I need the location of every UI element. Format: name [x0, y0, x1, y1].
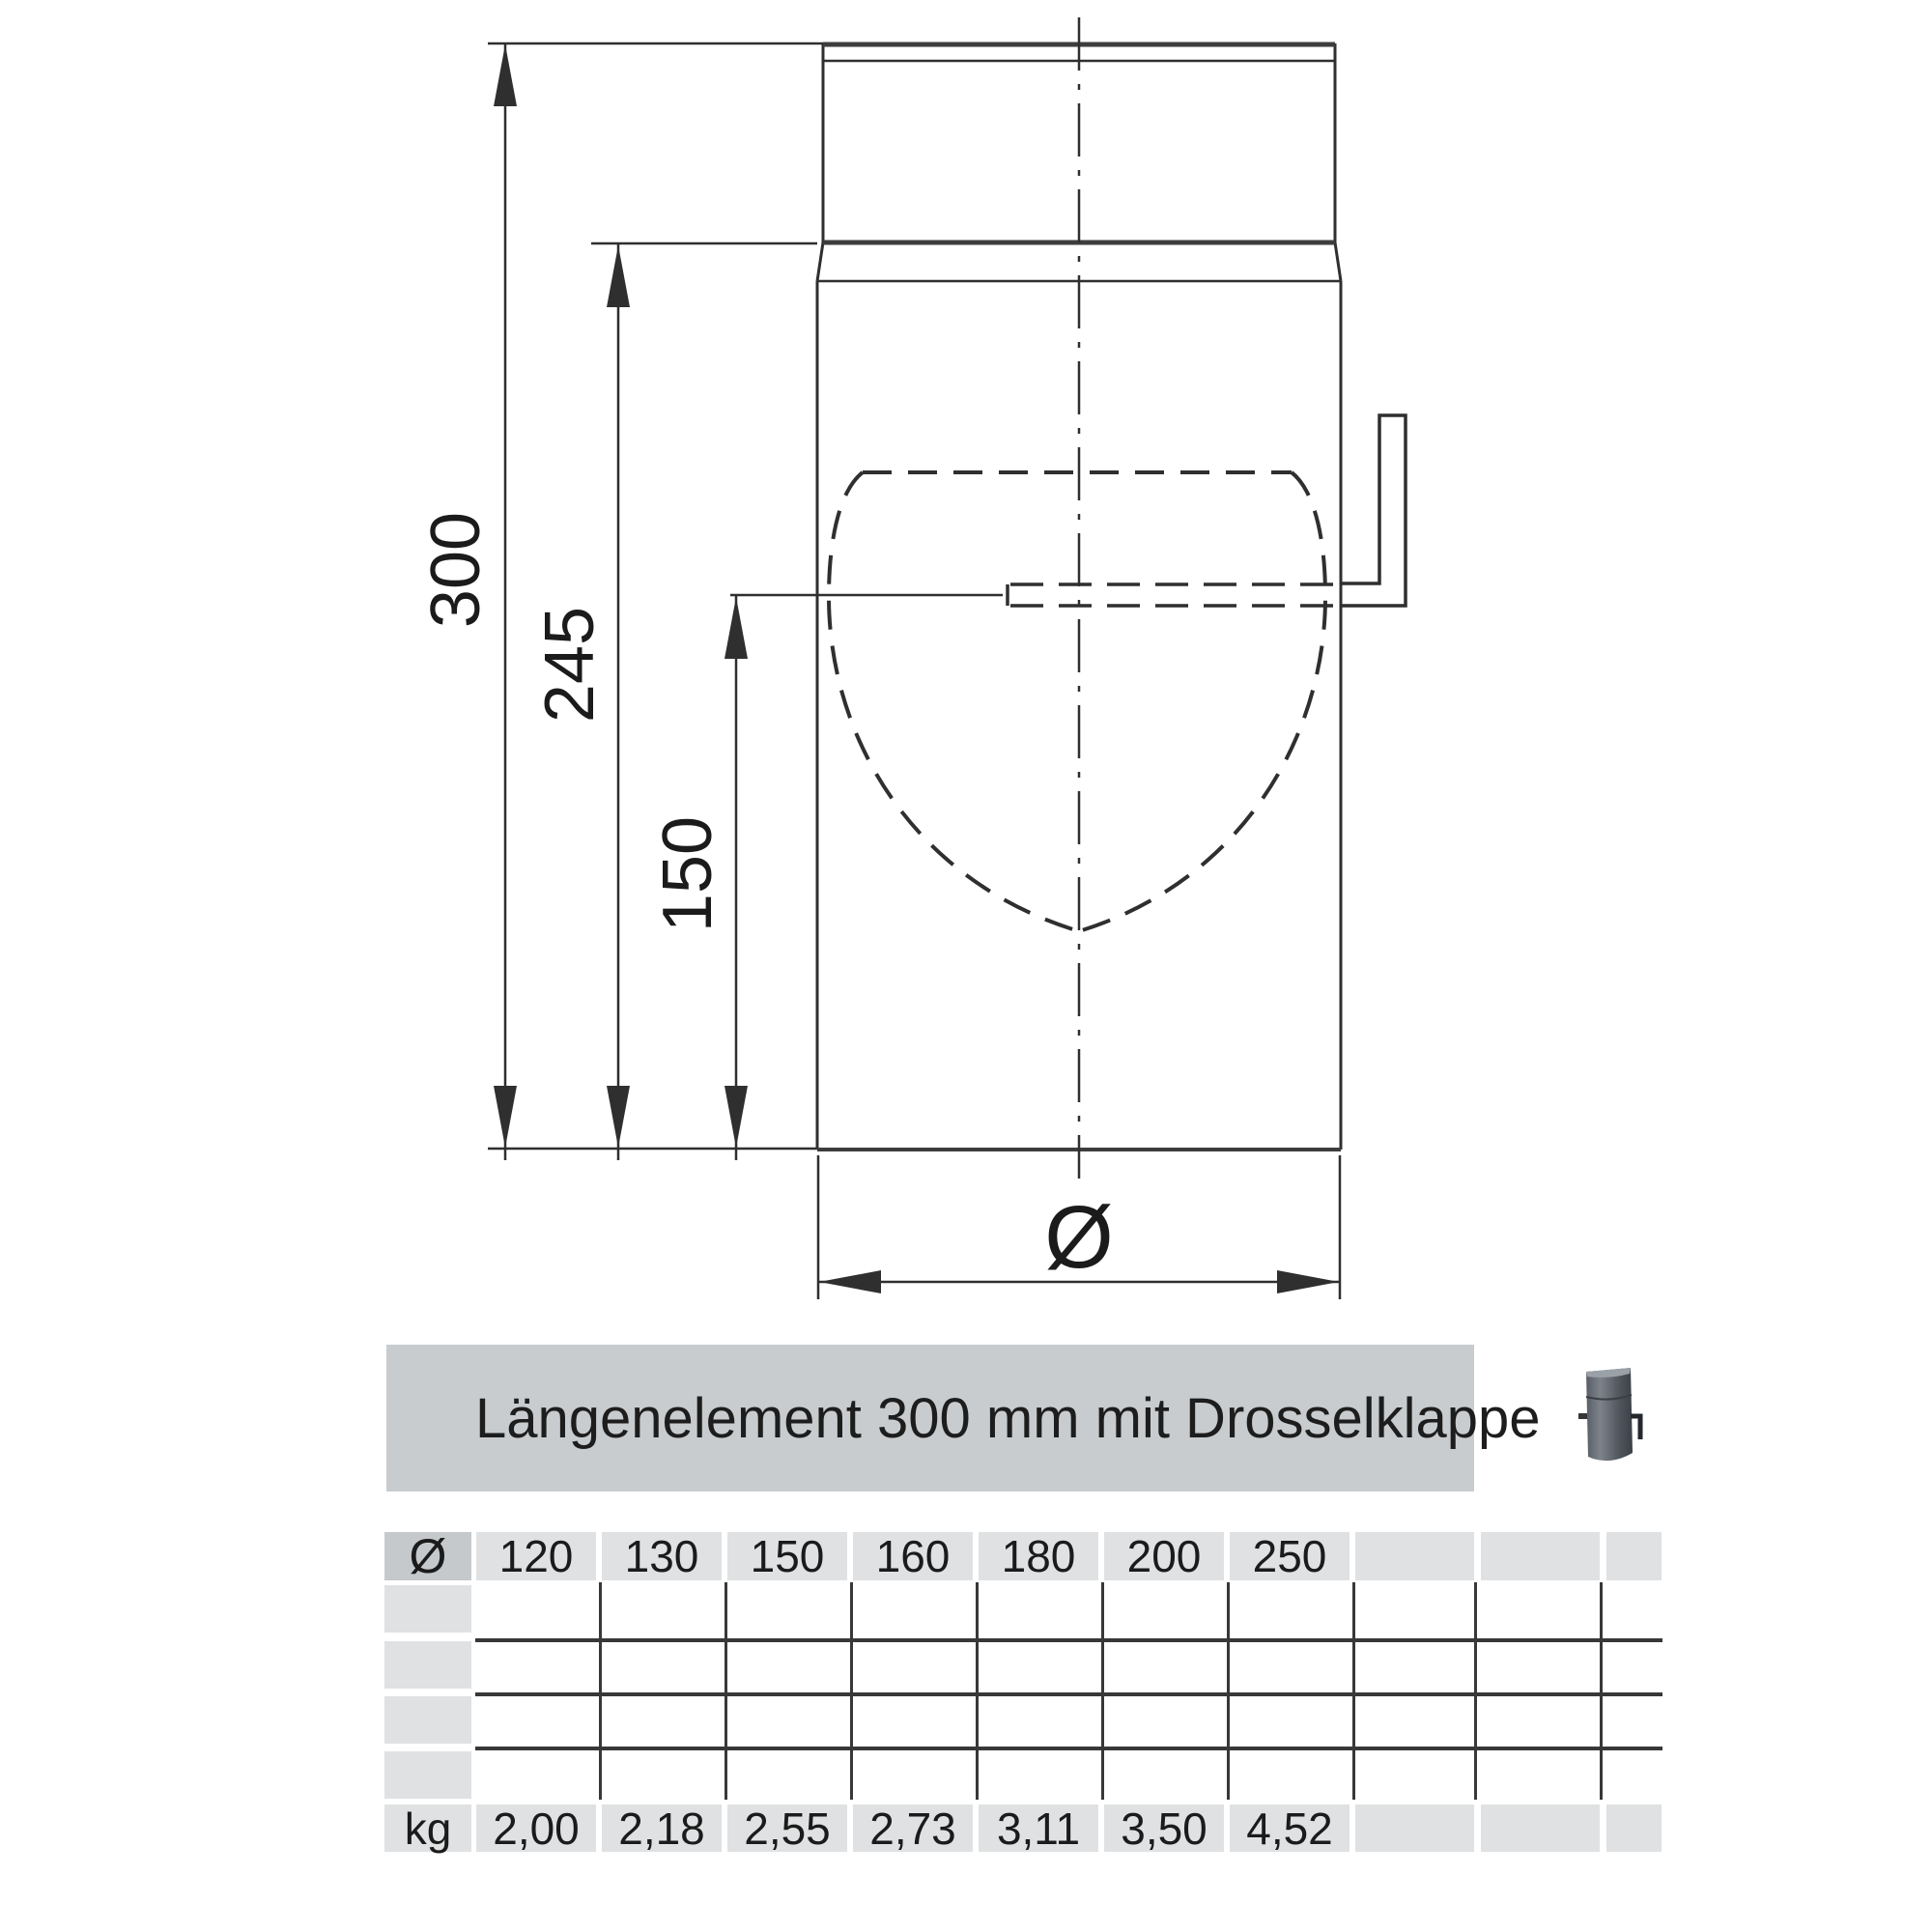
spacer-row-label-cell: [384, 1585, 471, 1633]
dimension-300-label: 300: [417, 512, 495, 628]
diameter-value-cell: 180: [979, 1532, 1098, 1580]
weight-value-cell: 2,18: [602, 1804, 722, 1852]
grid-line-horizontal: [475, 1692, 1662, 1696]
diameter-value-cell: 250: [1230, 1532, 1350, 1580]
header-empty-cell: [1355, 1532, 1474, 1580]
spacer-row-label-cell: [384, 1696, 471, 1744]
spacer-row-label-cell: [384, 1641, 471, 1689]
diameter-value-cell: 150: [727, 1532, 847, 1580]
weight-header-cell: kg: [384, 1804, 471, 1852]
weight-empty-cell: [1481, 1804, 1600, 1852]
technical-drawing: 300 245 150 Ø: [0, 0, 1932, 1323]
weight-empty-cell: [1355, 1804, 1474, 1852]
grid-line-vertical: [724, 1582, 727, 1800]
dimension-150-label: 150: [649, 816, 726, 932]
dimension-diameter-label: Ø: [1044, 1188, 1114, 1287]
diameter-header-cell: Ø: [384, 1532, 471, 1580]
damper-flap-dashed: [829, 472, 1325, 931]
grid-line-horizontal: [475, 1638, 1662, 1642]
grid-line-vertical: [1600, 1582, 1603, 1800]
damper-handle: [1341, 415, 1406, 606]
diameter-value-cell: 200: [1104, 1532, 1224, 1580]
header-empty-cell: [1481, 1532, 1600, 1580]
dimension-lines: [505, 43, 1339, 1282]
weight-value-cell: 2,55: [727, 1804, 847, 1852]
weight-value-cell: 2,00: [476, 1804, 596, 1852]
dimension-arrowheads: [494, 44, 1339, 1293]
product-title-banner: Längenelement 300 mm mit Drosselklappe: [386, 1345, 1474, 1492]
header-empty-cell: [1606, 1532, 1662, 1580]
diameter-value-cell: 160: [853, 1532, 973, 1580]
dimension-245-label: 245: [531, 607, 609, 723]
product-title: Längenelement 300 mm mit Drosselklappe: [475, 1386, 1541, 1451]
weight-value-cell: 4,52: [1230, 1804, 1350, 1852]
grid-line-vertical: [1227, 1582, 1230, 1800]
grid-line-vertical: [599, 1582, 602, 1800]
grid-line-horizontal: [475, 1747, 1662, 1750]
weight-value-cell: 3,50: [1104, 1804, 1224, 1852]
damper-axle-rod: [1008, 584, 1341, 606]
grid-line-vertical: [976, 1582, 979, 1800]
product-datasheet: 300 245 150 Ø Längenelement 300 mm mit D…: [0, 0, 1932, 1932]
weight-value-cell: 3,11: [979, 1804, 1098, 1852]
diameter-value-cell: 130: [602, 1532, 722, 1580]
product-photo-icon: [1573, 1358, 1646, 1472]
diameter-value-cell: 120: [476, 1532, 596, 1580]
grid-line-vertical: [1474, 1582, 1477, 1800]
grid-line-vertical: [1101, 1582, 1104, 1800]
weight-value-cell: 2,73: [853, 1804, 973, 1852]
grid-line-vertical: [1352, 1582, 1355, 1800]
spacer-row-label-cell: [384, 1751, 471, 1799]
weight-empty-cell: [1606, 1804, 1662, 1852]
grid-line-vertical: [850, 1582, 853, 1800]
